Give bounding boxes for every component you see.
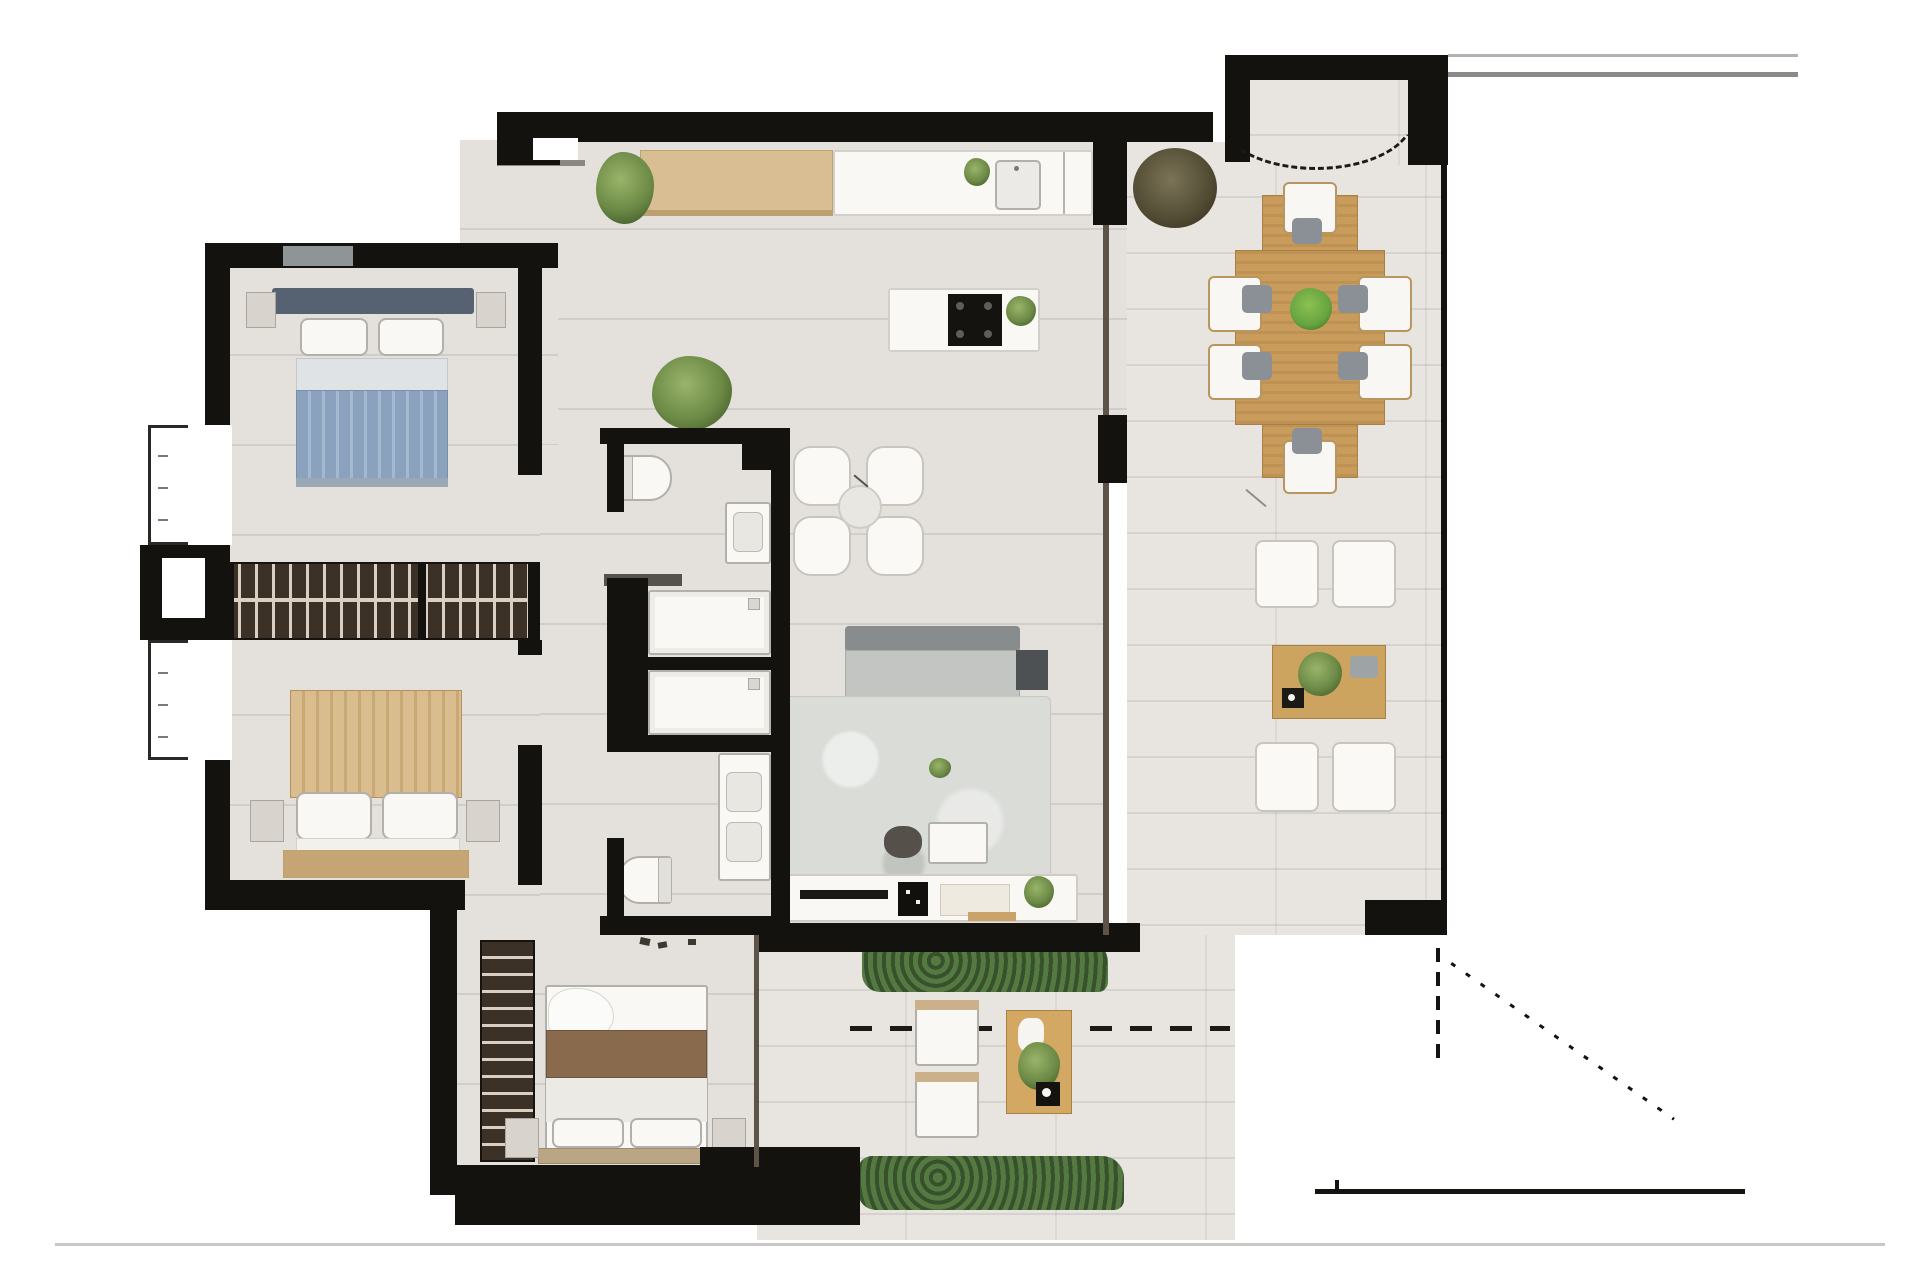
bedroom2-headboard [272, 288, 474, 314]
nightstand [476, 292, 506, 328]
wall [1093, 142, 1127, 225]
console-wood-item [968, 912, 1016, 921]
window-line [148, 643, 151, 757]
floor-plan-canvas [0, 0, 1920, 1280]
wall [430, 905, 457, 1195]
bedroom3-tan-duvet [290, 690, 462, 798]
wall [771, 444, 790, 916]
master-headboard [538, 1148, 716, 1164]
counter-divider [1063, 152, 1065, 214]
wall [205, 243, 230, 425]
nightstand [505, 1118, 539, 1158]
nightstand [246, 292, 276, 328]
wall [607, 578, 648, 745]
diagonal-dotted-boundary [1450, 962, 1675, 1120]
wall [455, 1165, 705, 1225]
shower-drain [748, 678, 760, 690]
tv-soundbar [800, 890, 888, 899]
tub-drain [748, 598, 760, 610]
cooktop-burner [984, 302, 992, 310]
master-bed-duvet [546, 1078, 707, 1122]
kitchen-counter [833, 150, 1093, 216]
hedgerow [858, 1156, 1124, 1210]
wall-window-inset [283, 246, 353, 266]
sink-basin [733, 512, 763, 552]
window-tick [158, 455, 168, 457]
toilet-tank [658, 858, 671, 902]
wall [205, 880, 465, 910]
window-tick [158, 519, 168, 521]
sofa-back [845, 626, 1020, 652]
wall [755, 923, 1140, 952]
wall [607, 735, 790, 752]
nightstand [250, 800, 284, 842]
place-setting [1292, 218, 1322, 244]
lounge-armchair [1255, 540, 1319, 608]
window-tick [158, 704, 168, 706]
lounger-headrest [915, 1072, 979, 1082]
window-line [148, 428, 151, 542]
window-symbol [146, 425, 232, 545]
sofa-side-table [1016, 650, 1048, 690]
entry-door-recess [533, 138, 578, 160]
boundary-vertical-dashes [1436, 948, 1440, 1066]
wardrobe-divider [418, 562, 426, 640]
property-line-thick [1448, 72, 1798, 77]
place-setting [1242, 285, 1272, 313]
bedroom2-pillow [378, 318, 444, 356]
place-setting [1338, 352, 1368, 380]
lounge-armchair [1255, 742, 1319, 812]
wall [497, 112, 1213, 142]
window-symbol [146, 640, 232, 760]
window-cap [148, 425, 188, 428]
tray-dot [1288, 694, 1295, 701]
wall [1098, 415, 1127, 483]
living-glass-wall [1103, 483, 1109, 935]
window-cap [148, 640, 188, 643]
faucet-icon [1014, 166, 1019, 171]
media-box [898, 882, 928, 916]
wall [700, 1147, 860, 1225]
master-pillow [552, 1118, 624, 1148]
wall [518, 640, 542, 655]
bottom-boundary-tick [1335, 1180, 1339, 1189]
bedroom2-duvet-fold [296, 358, 448, 392]
bedroom3-foot-bench [283, 850, 469, 878]
cooktop-burner [956, 302, 964, 310]
window-tick [158, 672, 168, 674]
bedroom3-pillow [382, 792, 458, 840]
master-pillow [630, 1118, 702, 1148]
nook-table [838, 485, 882, 529]
sink-basin [726, 822, 762, 862]
outside-notch [378, 910, 432, 1200]
wardrobe-rod [228, 598, 534, 602]
nightstand [466, 800, 500, 842]
master-bed-brown-throw [546, 1030, 707, 1078]
bedroom2-bed-foot [296, 478, 448, 487]
wall [1408, 55, 1448, 165]
bottom-boundary-line [1315, 1189, 1745, 1194]
cooktop-burner [984, 330, 992, 338]
coffee-table [928, 822, 988, 864]
wall-door-notch [162, 558, 205, 618]
window-tick [158, 736, 168, 738]
pouf [884, 826, 922, 858]
lounge-cups [1350, 656, 1378, 678]
nook-armchair [866, 516, 924, 576]
wall [518, 745, 542, 885]
nook-armchair [793, 516, 851, 576]
bedroom2-pillow [300, 318, 368, 356]
place-setting [1292, 428, 1322, 454]
window-tick [158, 487, 168, 489]
media-box-dot [906, 890, 910, 894]
sink-basin [726, 772, 762, 812]
place-setting [1338, 285, 1368, 313]
kitchen-sideboard [640, 150, 833, 216]
large-potted-plant [1133, 148, 1217, 228]
wardrobe-cap [528, 562, 540, 640]
property-line-thin [1448, 54, 1798, 57]
master-glass-wall [754, 935, 759, 1167]
terrace-boundary-wall [1441, 162, 1447, 902]
sliding-door-line [1103, 225, 1109, 415]
wall [648, 657, 771, 670]
media-box-dot [916, 900, 920, 904]
cooktop-burner [956, 330, 964, 338]
bedroom3-pillow [296, 792, 372, 840]
sofa-seat [845, 650, 1020, 702]
wall [205, 243, 558, 268]
bedroom2-blue-duvet [296, 390, 448, 482]
slipper-mark [688, 939, 696, 945]
place-setting [1242, 352, 1272, 380]
lounge-armchair [1332, 540, 1396, 608]
window-cap [148, 542, 188, 545]
lounger-headrest [915, 1000, 979, 1010]
cup-dot [1042, 1088, 1051, 1097]
page-baseline [55, 1243, 1885, 1246]
window-cap [148, 757, 188, 760]
cooktop [948, 294, 1002, 346]
wall [1365, 900, 1447, 935]
wall [607, 444, 624, 512]
wall [518, 268, 542, 475]
lounge-armchair [1332, 742, 1396, 812]
